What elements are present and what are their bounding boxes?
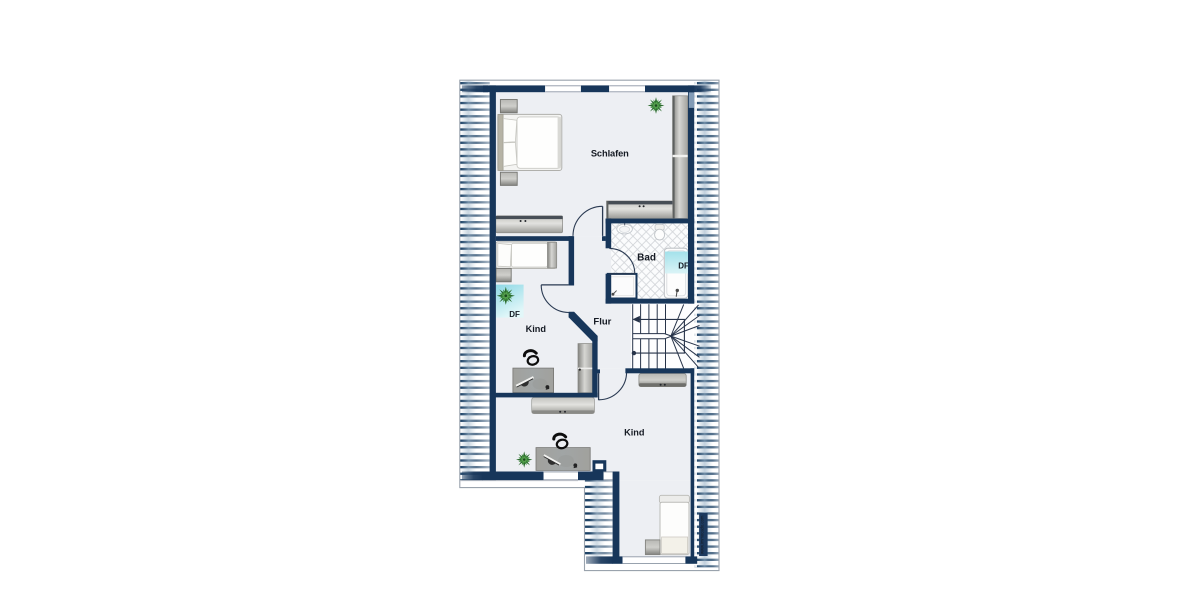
svg-text:Flur: Flur [593,317,611,328]
svg-text:Kind: Kind [526,324,546,334]
svg-text:Kind: Kind [624,427,644,437]
svg-text:Bad: Bad [637,252,656,263]
svg-text:DF: DF [509,310,520,319]
svg-text:Schlafen: Schlafen [591,148,629,158]
svg-text:DF: DF [678,262,689,271]
svg-text:www.immocado.com: www.immocado.com [699,515,704,554]
